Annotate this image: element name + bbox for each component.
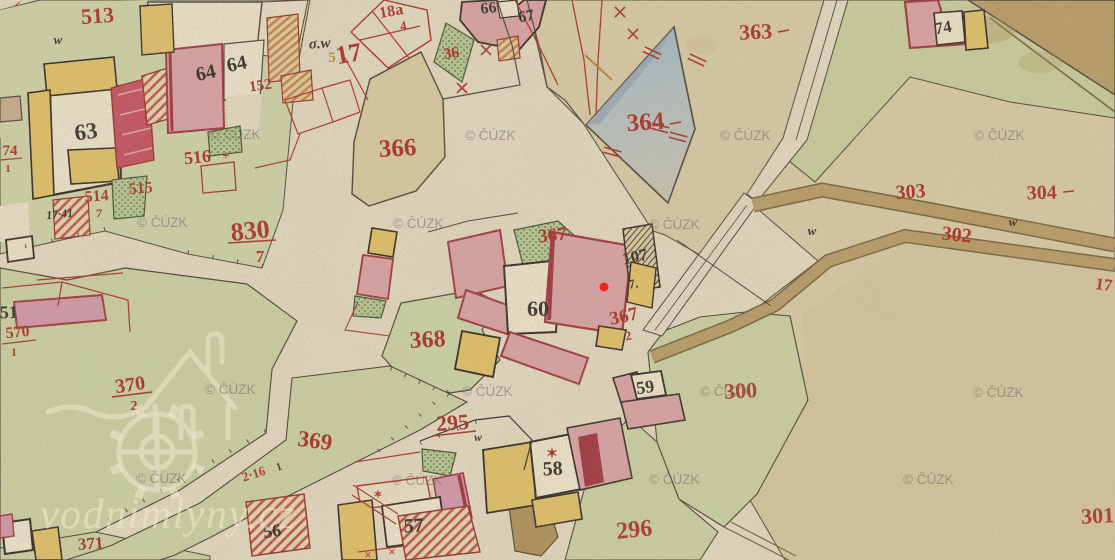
svg-text:© ČÚZK: © ČÚZK	[720, 128, 770, 143]
svg-text:© ČÚZK: © ČÚZK	[649, 472, 699, 487]
svg-text:© ČÚZK: © ČÚZK	[210, 127, 260, 142]
svg-text:© ČÚZK: © ČÚZK	[136, 471, 186, 486]
svg-text:© ČÚZK: © ČÚZK	[205, 382, 255, 397]
svg-text:© ČÚZK: © ČÚZK	[137, 215, 187, 230]
svg-text:© ČÚZK: © ČÚZK	[700, 384, 750, 399]
svg-text:© ČÚZK: © ČÚZK	[462, 384, 512, 399]
svg-text:© ČÚZK: © ČÚZK	[903, 472, 953, 487]
svg-text:vodnimlyny.cz: vodnimlyny.cz	[40, 492, 296, 538]
svg-text:© ČÚZK: © ČÚZK	[649, 217, 699, 232]
svg-text:© ČÚZK: © ČÚZK	[465, 128, 515, 143]
svg-text:© ČÚZK: © ČÚZK	[974, 128, 1024, 143]
svg-text:© ČÚZK: © ČÚZK	[973, 385, 1023, 400]
svg-text:© ČÚZK: © ČÚZK	[392, 473, 442, 488]
svg-text:© ČÚZK: © ČÚZK	[393, 216, 443, 231]
